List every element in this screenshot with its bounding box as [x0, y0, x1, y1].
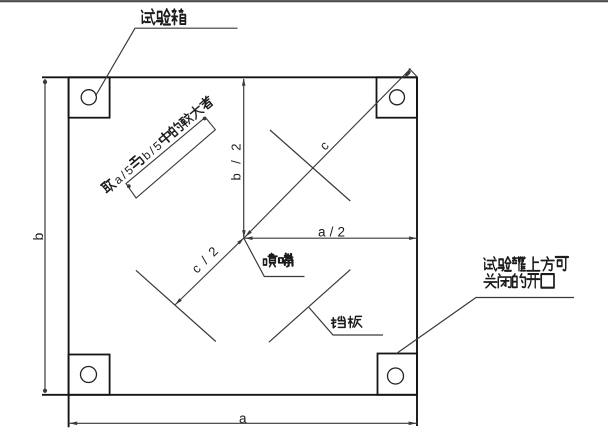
svg-text:a: a: [239, 411, 247, 426]
svg-text:b: b: [30, 233, 46, 241]
svg-text:a/2: a/2: [318, 225, 345, 240]
svg-text:c/2: c/2: [189, 244, 222, 277]
svg-text:b/2: b/2: [229, 144, 244, 181]
svg-text:a/5: a/5: [111, 163, 136, 187]
